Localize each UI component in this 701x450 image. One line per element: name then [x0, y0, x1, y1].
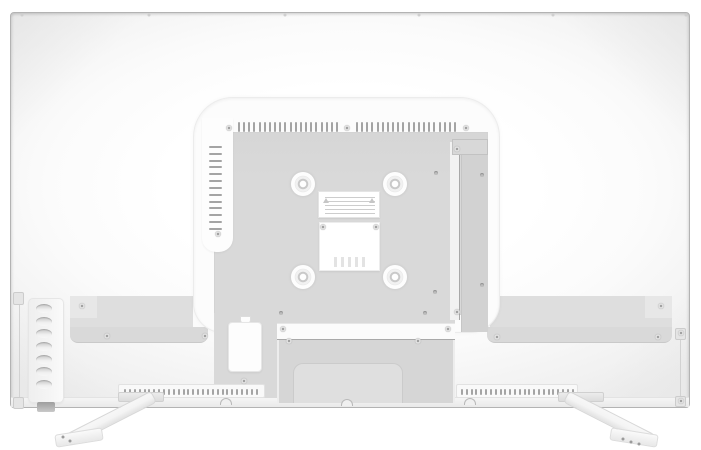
grip-dot-layer [0, 0, 701, 450]
grip-dot [622, 438, 625, 441]
grip-dot [638, 443, 641, 446]
grip-dot [69, 440, 72, 443]
grip-dot [62, 436, 65, 439]
tv-rear-photo [0, 0, 701, 450]
grip-dot [630, 441, 633, 444]
